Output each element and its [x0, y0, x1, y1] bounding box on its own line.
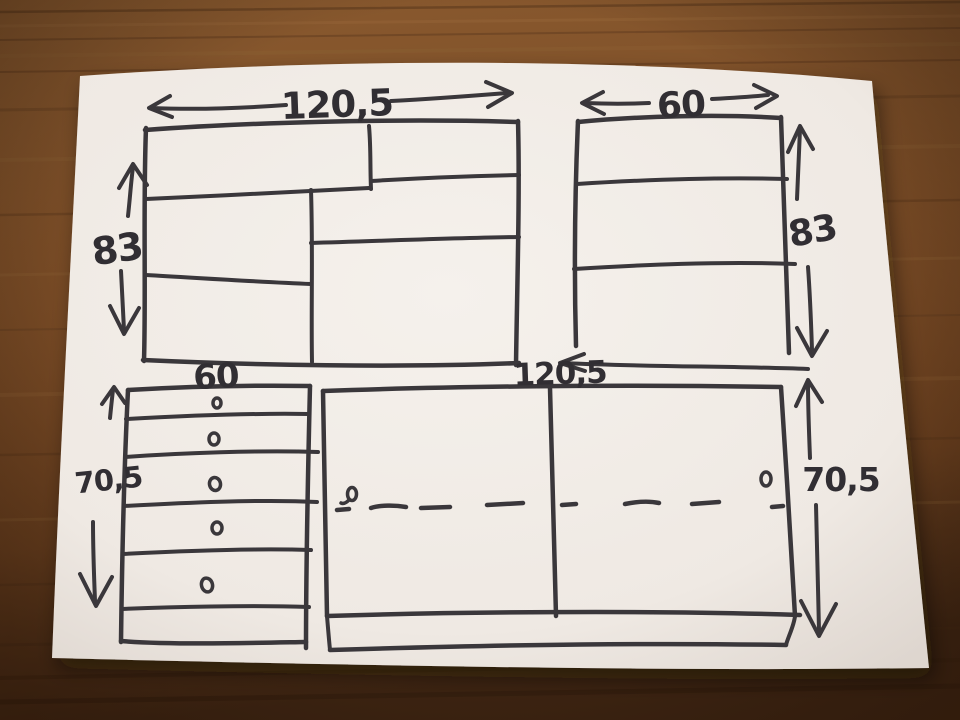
- bottom-right-width-label: 120,5: [513, 354, 607, 393]
- top-left-width-label: 120,5: [280, 81, 393, 128]
- dash: [371, 506, 406, 508]
- photo-of-sketch: 120,5 83 60 83: [0, 0, 960, 720]
- bottom-left-height-label: 70,5: [73, 460, 144, 501]
- dash: [772, 506, 783, 507]
- dash: [562, 504, 576, 505]
- bottom-right-height-label: 70,5: [802, 460, 879, 499]
- sketch-canvas: 120,5 83 60 83: [0, 0, 960, 720]
- dimension-line: [585, 103, 649, 104]
- dimension-line: [93, 522, 95, 601]
- top-right-height-label: 83: [785, 207, 839, 256]
- bottom-left-width-label: 60: [192, 356, 240, 398]
- dimension-line: [808, 383, 810, 458]
- dash: [692, 502, 719, 504]
- dash: [487, 503, 523, 505]
- top-right-width-label: 60: [656, 84, 706, 127]
- dash: [337, 509, 349, 510]
- dresser-outline-bottom: [121, 641, 306, 643]
- cabinet-outline-right: [516, 121, 519, 365]
- dash: [421, 507, 450, 508]
- top-left-height-label: 83: [89, 224, 146, 275]
- dash: [625, 502, 659, 504]
- cabinet-outline-left: [144, 128, 146, 361]
- divider-line: [311, 190, 312, 362]
